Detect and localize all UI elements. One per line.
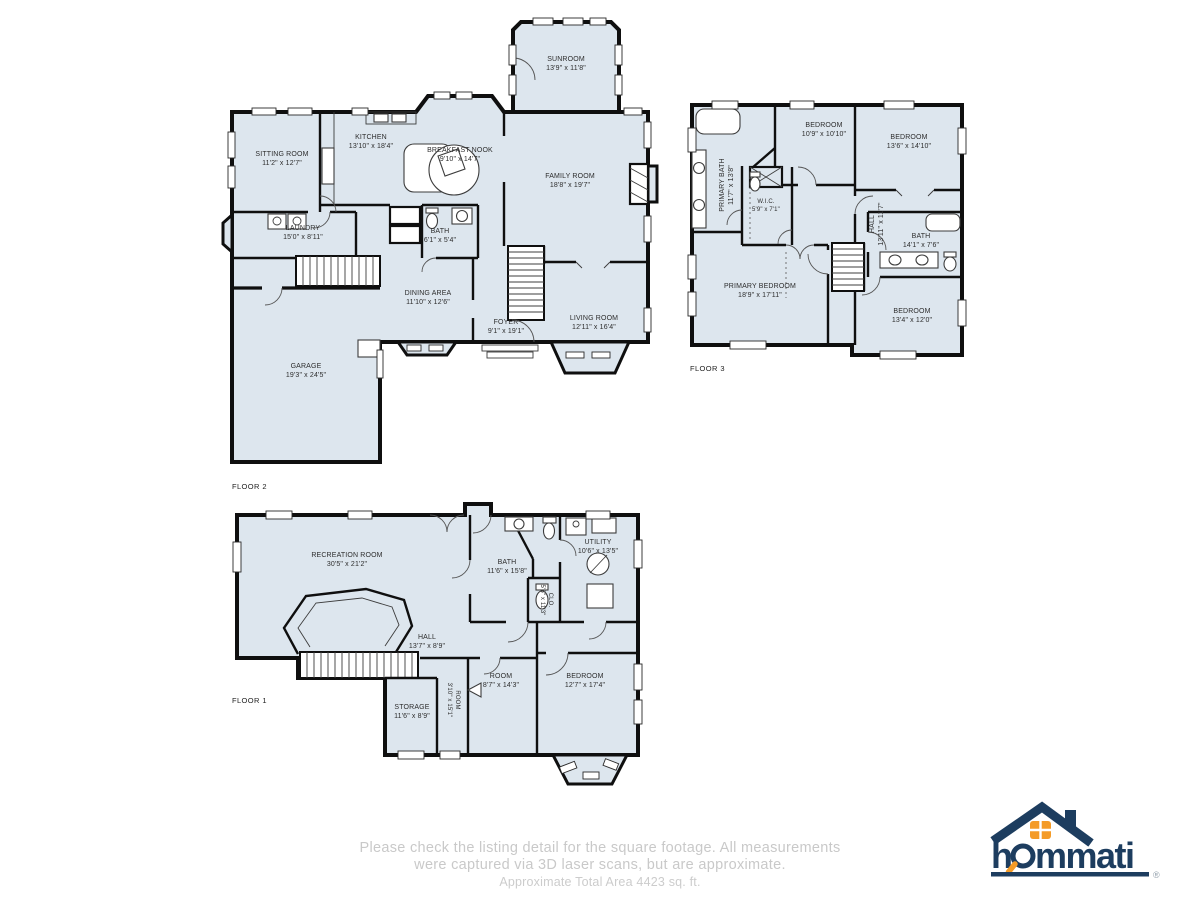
logo-underline	[991, 872, 1149, 877]
room-label-breakfast-nook: BREAKFAST NOOK9'10" x 14'7"	[427, 146, 493, 164]
room-label-kitchen: KITCHEN13'10" x 18'4"	[349, 133, 393, 151]
room-label-utility: UTILITY10'6" x 13'5"	[578, 538, 618, 556]
room-label-bath-floor3: BATH14'1" x 7'6"	[903, 232, 939, 250]
room-label-family-room: FAMILY ROOM18'8" x 19'7"	[545, 172, 595, 190]
brand-text-rest: mmati	[1035, 835, 1134, 876]
room-label-laundry: LAUNDRY15'0" x 8'11"	[283, 224, 323, 242]
room-label-foyer: FOYER9'1" x 19'1"	[488, 318, 524, 336]
room-label-garage: GARAGE19'3" x 24'5"	[286, 362, 326, 380]
room-label-bedroom-floor1: BEDROOM12'7" x 17'4"	[565, 672, 605, 690]
room-label-primary-bath: PRIMARY BATH11'7" x 13'8"	[718, 158, 736, 212]
chimney-icon	[1065, 810, 1076, 828]
room-label-bedroom-3: BEDROOM13'4" x 12'0"	[892, 307, 932, 325]
floor3-label: FLOOR 3	[690, 364, 725, 373]
room-label-primary-bedroom: PRIMARY BEDROOM18'9" x 17'11"	[724, 282, 796, 300]
room-label-dining-area: DINING AREA11'10" x 12'6"	[405, 289, 452, 307]
room-label-closet: CLO.5'6" x 11'3"	[537, 585, 553, 616]
room-label-sunroom: SUNROOM13'9" x 11'8"	[546, 55, 586, 73]
room-label-recreation-room: RECREATION ROOM30'5" x 21'2"	[311, 551, 382, 569]
room-label-hall-floor1: HALL13'7" x 8'9"	[409, 633, 445, 651]
room-label-sitting-room: SITTING ROOM11'2" x 12'7"	[255, 150, 308, 168]
registered-mark: ®	[1153, 870, 1160, 880]
room-label-room-narrow: ROOM3'10" x 15'1"	[444, 683, 460, 718]
room-label-storage: STORAGE11'6" x 8'9"	[394, 703, 430, 721]
room-label-bath-floor2: BATH6'1" x 5'4"	[424, 227, 456, 245]
room-label-wic: W.I.C.5'9" x 7'1"	[752, 199, 780, 215]
room-label-hall-floor3: HALL13'11" x 11'7"	[868, 202, 886, 245]
room-label-room: ROOM8'7" x 14'3"	[483, 672, 519, 690]
room-label-bedroom-2: BEDROOM13'6" x 14'10"	[887, 133, 931, 151]
hommati-logo: h mmati ®	[983, 794, 1185, 886]
floor-plan-drawing	[0, 0, 1200, 900]
floor-plan-page: SUNROOM13'9" x 11'8" SITTING ROOM11'2" x…	[0, 0, 1200, 900]
room-label-living-room: LIVING ROOM12'11" x 16'4"	[570, 314, 618, 332]
floor2-label: FLOOR 2	[232, 482, 267, 491]
floor1-label: FLOOR 1	[232, 696, 267, 705]
room-label-bedroom-1: BEDROOM10'9" x 10'10"	[802, 121, 846, 139]
room-label-bath-floor1: BATH11'6" x 15'8"	[487, 558, 527, 576]
